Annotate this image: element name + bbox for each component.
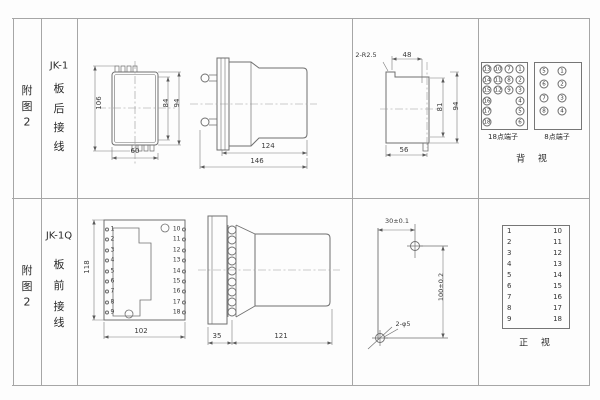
dim-text-124: 124 <box>261 142 274 150</box>
terminal-number: 8 <box>111 299 115 306</box>
terminal-dot-icon <box>105 300 109 304</box>
terminal-pin-18: 12 <box>494 86 503 95</box>
hole-note-leader <box>384 329 398 337</box>
terminal-pin-18: 14 <box>483 76 492 85</box>
terminal-number: 14 <box>173 268 181 275</box>
terminal-pin-18: 11 <box>494 76 503 85</box>
terminal-dot-icon <box>182 289 186 293</box>
table-number-left: 4 <box>507 260 511 268</box>
screw-terminal-icon <box>201 118 209 126</box>
table-number-right: 15 <box>553 282 562 290</box>
dim-text-56: 56 <box>400 146 409 154</box>
terminal-pin-18: 5 <box>516 107 525 116</box>
front-terminal-left: 2 <box>105 236 114 243</box>
table-number-left: 6 <box>507 282 511 290</box>
wiring-label-char: 后 <box>54 100 65 116</box>
terminal-number: 5 <box>111 268 115 275</box>
table-number-right: 10 <box>553 227 562 235</box>
wiring-label-char: 接 <box>54 119 65 135</box>
front-terminal-left: 5 <box>105 268 114 275</box>
mounting-hole-icon <box>161 224 169 232</box>
terminal-pin-8: 4 <box>558 107 567 116</box>
front-terminal-right: 16 <box>173 288 186 295</box>
terminal-dot-icon <box>105 248 109 252</box>
dim-text-146: 146 <box>250 157 263 165</box>
front-terminal-right: 10 <box>173 226 186 233</box>
hole-note-text: 2-φ5 <box>396 320 411 328</box>
terminal-dot-icon <box>182 279 186 283</box>
terminal-pin-18: 9 <box>505 86 514 95</box>
screw-terminal-icon <box>201 74 209 82</box>
figure-label-char: 图 <box>22 98 33 114</box>
terminal-pin-18: 10 <box>494 65 503 74</box>
terminal-dot-icon <box>105 258 109 262</box>
terminal-bumps <box>228 226 236 316</box>
front-terminal-left: 8 <box>105 299 114 306</box>
terminal-pin-18: 2 <box>516 76 525 85</box>
terminal-pin-18: 17 <box>483 107 492 116</box>
table-number-left: 7 <box>507 293 511 301</box>
terminal-dot-icon <box>182 248 186 252</box>
front-terminal-left: 6 <box>105 278 114 285</box>
connector-cutout-outline <box>113 228 151 316</box>
wiring-label-char: 线 <box>54 138 65 154</box>
front-terminal-right: 17 <box>173 299 186 306</box>
terminal-dot-icon <box>105 237 109 241</box>
model-label: JK-1 <box>50 61 68 72</box>
dim-text-100: 100±0.2 <box>437 273 445 301</box>
terminal-dot-icon <box>105 227 109 231</box>
table-number-left: 1 <box>507 227 511 235</box>
figure-page: 附 图 2 JK-1 板 后 接 线 <box>0 0 600 400</box>
terminal-block-18-caption: 18点端子 <box>488 132 518 142</box>
terminal-pin-18: 8 <box>505 76 514 85</box>
radius-note: 2-R2.5 <box>355 51 376 59</box>
figure-label-char: 附 <box>22 262 33 278</box>
dim-text-60: 60 <box>131 147 140 155</box>
dim-text-35: 35 <box>213 332 222 340</box>
dim-text-94: 94 <box>173 99 181 108</box>
terminal-number: 4 <box>111 257 115 264</box>
terminal-pin-8: 3 <box>558 94 567 103</box>
dim-text-106: 106 <box>95 96 103 109</box>
table-number-right: 13 <box>553 260 562 268</box>
terminal-number: 9 <box>111 309 115 316</box>
terminal-pin-8: 5 <box>540 67 549 76</box>
terminal-dot-icon <box>182 269 186 273</box>
terminal-pin-18: 4 <box>516 97 525 106</box>
terminal-number: 6 <box>111 278 115 285</box>
terminal-pin-18: 6 <box>516 118 525 127</box>
table-number-right: 11 <box>553 238 562 246</box>
terminal-dot-icon <box>105 279 109 283</box>
terminal-column <box>228 225 236 317</box>
front-terminal-left: 7 <box>105 288 114 295</box>
table-number-right: 14 <box>553 271 562 279</box>
terminal-block-8-caption: 8点端子 <box>544 132 569 142</box>
terminal-number: 1 <box>111 226 115 233</box>
terminal-number: 12 <box>173 247 181 254</box>
terminal-pin-8: 8 <box>540 107 549 116</box>
table-number-right: 17 <box>553 304 562 312</box>
wiring-label-char: 板 <box>54 80 65 96</box>
terminal-number: 17 <box>173 299 181 306</box>
terminal-dot-icon <box>182 227 186 231</box>
figure-label-char: 2 <box>24 116 31 129</box>
wiring-label-char: 线 <box>54 314 65 330</box>
dim-text-121: 121 <box>274 332 287 340</box>
model-label: JK-1Q <box>46 231 72 242</box>
table-number-left: 9 <box>507 315 511 323</box>
terminal-pin-18: 15 <box>483 86 492 95</box>
grid-line-col4 <box>478 18 479 386</box>
terminal-number: 16 <box>173 288 181 295</box>
front-terminal-right: 18 <box>173 309 186 316</box>
wiring-label-char: 前 <box>54 277 65 293</box>
terminal-pin-18: 1 <box>516 65 525 74</box>
terminal-number: 15 <box>173 278 181 285</box>
table-number-left: 3 <box>507 249 511 257</box>
grid-line-col1 <box>41 18 42 386</box>
terminal-pin-18: 16 <box>483 97 492 106</box>
dim-text-102: 102 <box>134 327 147 335</box>
front-terminal-right: 13 <box>173 257 186 264</box>
terminal-number: 11 <box>173 236 181 243</box>
dim-text-94-cutout: 94 <box>452 102 460 111</box>
table-number-right: 12 <box>553 249 562 257</box>
terminal-pin-18: 18 <box>483 118 492 127</box>
grid-line-bottom <box>12 385 589 386</box>
terminal-pin-18: 7 <box>505 65 514 74</box>
dim-text-48: 48 <box>403 51 412 59</box>
terminal-pin-8: 7 <box>540 94 549 103</box>
terminal-number: 13 <box>173 257 181 264</box>
table-number-left: 2 <box>507 238 511 246</box>
terminal-number: 18 <box>173 309 181 316</box>
terminal-pin-8: 2 <box>558 80 567 89</box>
radius-leader <box>383 62 388 71</box>
terminal-teeth-top <box>115 66 137 72</box>
terminal-dot-icon <box>105 269 109 273</box>
terminal-dot-icon <box>182 310 186 314</box>
front-terminal-right: 11 <box>173 236 186 243</box>
terminal-pin-8: 1 <box>558 67 567 76</box>
grid-line-left-border <box>13 18 14 386</box>
terminal-pin-8: 6 <box>540 80 549 89</box>
figure-label-char: 附 <box>22 82 33 98</box>
rear-view-caption: 背 视 <box>516 152 552 165</box>
wiring-label-char: 接 <box>54 298 65 314</box>
figure-label-char: 图 <box>22 278 33 294</box>
front-terminal-left: 9 <box>105 309 114 316</box>
table-number-right: 16 <box>553 293 562 301</box>
side-view-drawing-jk1q <box>195 205 345 353</box>
grid-line-col2 <box>77 18 78 386</box>
grid-line-right-border <box>589 18 590 386</box>
terminal-dot-icon <box>182 300 186 304</box>
terminal-dot-icon <box>105 289 109 293</box>
terminal-dot-icon <box>182 237 186 241</box>
table-number-right: 18 <box>553 315 562 323</box>
dim-text-30: 30±0.1 <box>385 217 409 225</box>
grid-line-top <box>12 18 589 19</box>
terminal-number: 2 <box>111 236 115 243</box>
front-view-caption: 正 视 <box>519 336 555 349</box>
cutout-outline <box>386 72 429 143</box>
table-number-left: 8 <box>507 304 511 312</box>
front-terminal-right: 14 <box>173 268 186 275</box>
table-number-left: 5 <box>507 271 511 279</box>
figure-label-char: 2 <box>24 296 31 309</box>
dim-text-81: 81 <box>436 103 444 112</box>
grid-line-middle <box>12 198 589 199</box>
front-terminal-right: 15 <box>173 278 186 285</box>
front-terminal-left: 4 <box>105 257 114 264</box>
terminal-dot-icon <box>182 258 186 262</box>
terminal-dot-icon <box>105 310 109 314</box>
dim-text-84: 84 <box>162 99 170 108</box>
mounting-hole-icon <box>125 310 133 318</box>
front-terminal-left: 1 <box>105 226 114 233</box>
dim-text-118: 118 <box>83 260 91 273</box>
terminal-number: 7 <box>111 288 115 295</box>
front-terminal-left: 3 <box>105 247 114 254</box>
terminal-number: 3 <box>111 247 115 254</box>
terminal-pin-18: 3 <box>516 86 525 95</box>
wiring-label-char: 板 <box>54 256 65 272</box>
terminal-number: 10 <box>173 226 181 233</box>
front-terminal-right: 12 <box>173 247 186 254</box>
terminal-pin-18: 13 <box>483 65 492 74</box>
